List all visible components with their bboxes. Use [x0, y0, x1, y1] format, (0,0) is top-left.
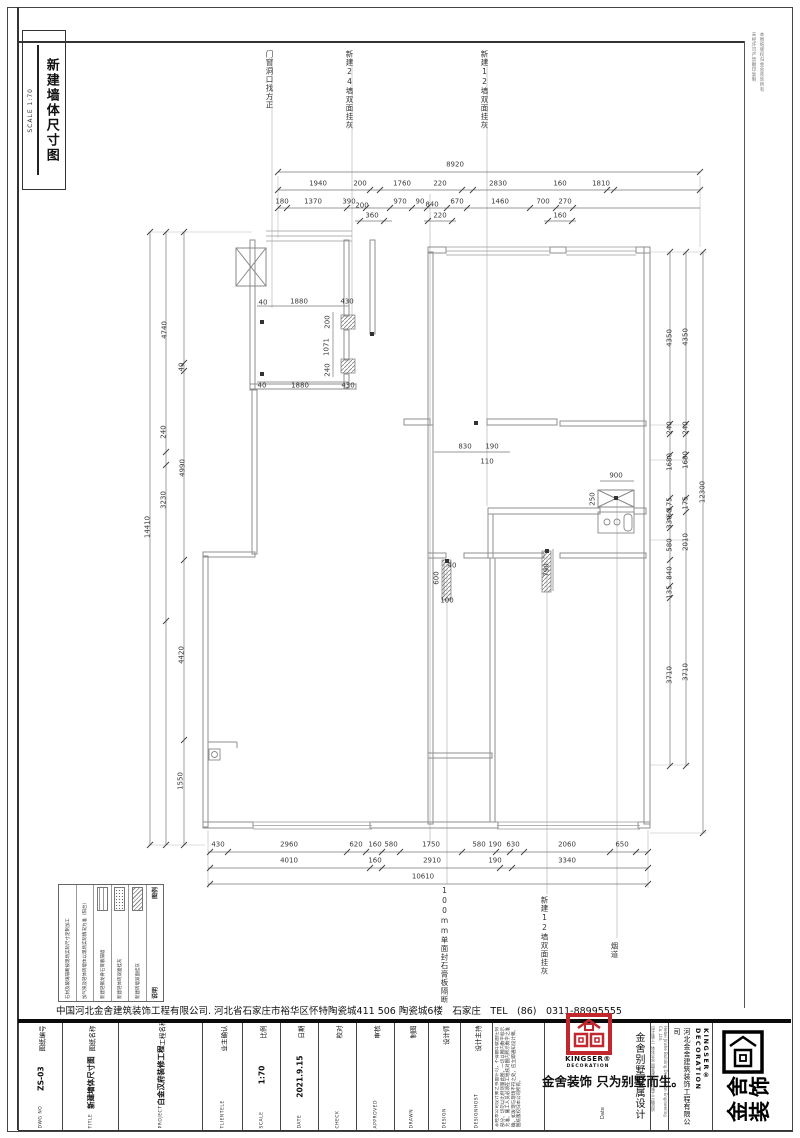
- company-address-line: 中国河北金舍建筑装饰工程有限公司. 河北省石家庄市裕华区怀特陶瓷城411 506…: [56, 1003, 756, 1017]
- dimension-label: 12300: [700, 481, 707, 503]
- dimension-label: 1071: [324, 338, 331, 356]
- dimension-label: 1680: [667, 453, 674, 471]
- dimension-label: 1760: [393, 181, 411, 188]
- dimension-label: 1370: [304, 199, 322, 206]
- dimension-label: 3710: [667, 666, 674, 684]
- dimension-label: 90: [416, 199, 425, 206]
- dimension-label: 240: [667, 421, 674, 434]
- dimension-label: 390: [342, 199, 355, 206]
- dimension-label: 4420: [179, 646, 186, 664]
- titleblock-field-designhost: DESIGNHOST设计主持: [460, 1023, 493, 1130]
- dimension-label: 1680: [683, 451, 690, 469]
- dimension-label: 1940: [309, 181, 327, 188]
- dimension-label: 175: [683, 496, 690, 509]
- dimension-label: 600: [434, 571, 441, 584]
- dimension-label: 1810: [592, 181, 610, 188]
- dimension-label: 430: [211, 842, 224, 849]
- dimension-label: 2960: [280, 842, 298, 849]
- dimension-label: 1460: [491, 199, 509, 206]
- dimension-label: 3710: [683, 663, 690, 681]
- dimension-label: 330: [667, 515, 674, 528]
- legend-swatch-hatch: [132, 887, 143, 911]
- kingser-wordmark: KINGSER® DECORATION: [558, 1056, 618, 1070]
- disclaimer-column: 非经本公司设计师之书面许可，不得翻印此图任何部分。切勿以比例测量此图，一切以图内…: [492, 1023, 545, 1130]
- annotation-label: 新建12墙双面挂灰: [480, 50, 488, 130]
- dimension-label: 8920: [446, 162, 464, 169]
- dimension-label: 2060: [558, 842, 576, 849]
- plan-label-layer: 8920194020017602202830160181018013703902…: [0, 0, 800, 1000]
- dimension-label: 970: [393, 199, 406, 206]
- dimension-label: 240: [325, 363, 332, 376]
- dimension-label: 14410: [145, 516, 152, 538]
- dimension-label: 430: [340, 299, 353, 306]
- kingser-text: KINGSER®: [558, 1056, 618, 1063]
- dimension-label: 160: [368, 858, 381, 865]
- dimension-label: 2830: [489, 181, 507, 188]
- dimension-label: 2910: [423, 858, 441, 865]
- kingser-vertical-text: KINGSER® DECORATION: [694, 1028, 710, 1128]
- dimension-label: 160: [553, 213, 566, 220]
- date-signature-label: Date: [600, 1107, 606, 1119]
- dimension-label: 270: [558, 199, 571, 206]
- dimension-label: 190: [488, 858, 501, 865]
- dimension-label: 580: [384, 842, 397, 849]
- dimension-label: 840: [425, 202, 438, 209]
- annotation-label: 门窗洞口找方正: [265, 50, 273, 110]
- legend-header: 说明图例: [146, 885, 164, 1001]
- dimension-label: 840: [667, 566, 674, 579]
- dimension-label: 135: [667, 585, 674, 598]
- legend-swatch-stipple: [114, 887, 125, 911]
- logo-char-line1: 金舍: [727, 1072, 749, 1122]
- dimension-label: 250: [590, 492, 597, 505]
- dimension-label: 1750: [422, 842, 440, 849]
- dimension-label: 240: [683, 421, 690, 434]
- dimension-label: 3340: [558, 858, 576, 865]
- dimension-label: 200: [325, 315, 332, 328]
- dimension-label: 1880: [290, 299, 308, 306]
- dimension-label: 160: [368, 842, 381, 849]
- dimension-label: 110: [480, 459, 493, 466]
- dimension-label: 180: [275, 199, 288, 206]
- drawing-sheet: SCALE 1:70 新建墙体尺寸图 未经许可严禁翻印复制 本图纸版权归金舍装饰…: [0, 0, 800, 1138]
- dimension-label: 580: [472, 842, 485, 849]
- dimension-label: 40: [448, 563, 457, 570]
- dimension-label: 580: [667, 538, 674, 551]
- brand-slogan: 金舍装饰 只为别墅而生。: [542, 1071, 664, 1090]
- dimension-label: 190: [485, 444, 498, 451]
- dimension-label: 40: [259, 300, 268, 307]
- dimension-label: 4990: [180, 459, 187, 477]
- legend-row: 新建轻钢龙骨石膏板隔墙: [93, 885, 111, 1001]
- dimension-label: 620: [349, 842, 362, 849]
- dimension-label: 360: [365, 213, 378, 220]
- dimension-label: 430: [341, 383, 354, 390]
- dimension-label: 650: [615, 842, 628, 849]
- dimension-label: 160: [553, 181, 566, 188]
- dimension-label: 630: [506, 842, 519, 849]
- legend-swatch-brick: [97, 887, 108, 911]
- legend-note: 石材及玻璃隔断按现场实际尺寸定制加工: [59, 885, 76, 1001]
- dimension-label: 220: [433, 213, 446, 220]
- dimension-label: 4350: [683, 328, 690, 346]
- brand-logotype-big: 金舍 装饰: [720, 1054, 778, 1138]
- dimension-label: 3230: [161, 491, 168, 509]
- dimension-label: 220: [433, 181, 446, 188]
- logo-char-line2: 装饰: [749, 1072, 771, 1122]
- dimension-label: 790: [544, 563, 551, 576]
- dimension-label: 830: [458, 444, 471, 451]
- dimension-label: 190: [488, 842, 501, 849]
- dimension-label: 4350: [667, 329, 674, 347]
- dimension-label: 10610: [412, 874, 434, 881]
- dimension-label: 40: [258, 383, 267, 390]
- dimension-label: 100: [440, 598, 453, 605]
- dimension-label: 200: [353, 181, 366, 188]
- decoration-text: DECORATION: [558, 1063, 618, 1070]
- annotation-label: 烟道: [610, 942, 618, 959]
- annotation-label: 100mm单面封石膏板隔断: [440, 886, 448, 1004]
- dimension-label: 240: [161, 425, 168, 438]
- disclaimer-text: 非经本公司设计师之书面许可，不得翻印此图任何部分。切勿以比例测量此图，一切以图内…: [495, 1027, 543, 1127]
- dimension-label: 1550: [178, 772, 185, 790]
- annotation-label: 新建12墙双面挂灰: [540, 896, 548, 976]
- dimension-label: 2010: [683, 533, 690, 551]
- annotation-label: 新建24墙双面挂灰: [345, 50, 353, 130]
- kingser-column-divider: [712, 1023, 713, 1130]
- legend-note: 加气块及轻体砖墙体以现场实际情况为准（阳台）: [76, 885, 94, 1001]
- legend-row: 新建砖墙双面挂灰: [128, 885, 146, 1001]
- dimension-label: 4740: [162, 321, 169, 339]
- dimension-label: 900: [609, 473, 622, 480]
- dimension-label: 700: [536, 199, 549, 206]
- dimension-label: 200: [355, 203, 368, 210]
- dimension-label: 1880: [291, 383, 309, 390]
- dimension-label: 40: [179, 363, 186, 372]
- dimension-label: 4010: [280, 858, 298, 865]
- legend-table: 石材及玻璃隔断按现场实际尺寸定制加工加气块及轻体砖墙体以现场实际情况为准（阳台）…: [58, 884, 164, 1002]
- dimension-label: 670: [450, 199, 463, 206]
- legend-row: 新建轻体砖双面挂灰: [111, 885, 129, 1001]
- kingser-red-logo-icon: [566, 1013, 612, 1055]
